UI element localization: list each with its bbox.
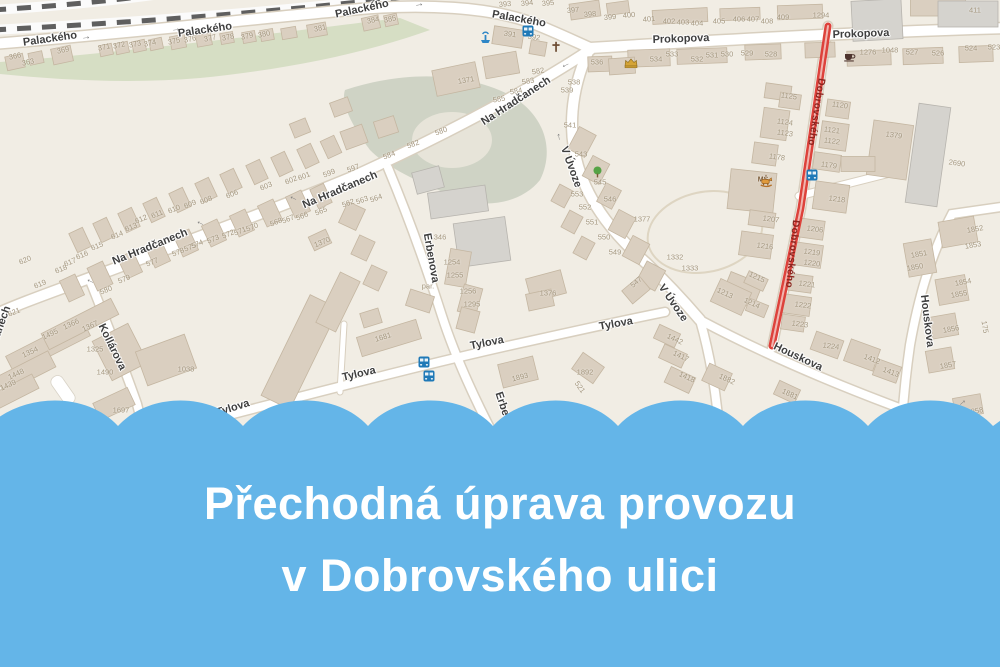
traffic-announcement-graphic: PalackéhoPalackéhoPalackéhoPalackéhoProk…	[0, 0, 1000, 667]
street-label: Palackého	[334, 0, 390, 21]
house-number: 2690	[948, 157, 966, 168]
house-number: 369	[56, 44, 70, 55]
house-number: 533	[666, 50, 679, 59]
house-number: 380	[257, 28, 271, 39]
house-number: 395	[541, 0, 554, 8]
house-number: 1412	[863, 352, 882, 366]
house-number: 563	[355, 194, 370, 207]
house-number: 405	[713, 17, 726, 26]
house-number: 616	[75, 248, 90, 261]
house-number: 526	[932, 49, 945, 58]
house-number: 407	[747, 15, 760, 24]
house-number: 1495	[41, 326, 60, 341]
house-number: 399	[603, 12, 616, 22]
house-number: 1213	[716, 285, 735, 300]
house-number: 530	[721, 50, 734, 59]
oneway-arrow-icon: →	[83, 275, 97, 289]
house-number: 1856	[942, 323, 960, 335]
house-number: 411	[969, 6, 981, 15]
house-number: 1442	[666, 331, 685, 346]
house-number: 552	[579, 203, 592, 212]
house-number: 584	[382, 149, 397, 162]
house-number: 1417	[672, 348, 691, 363]
street-label: Tylova	[341, 364, 377, 383]
banner-line-2: v Dobrovského ulici	[0, 540, 1000, 612]
house-number: 536	[591, 58, 604, 67]
house-number: 1179	[820, 159, 837, 170]
house-number: 1216	[756, 240, 774, 251]
house-number: 374	[143, 37, 157, 48]
house-number: 572	[221, 227, 236, 240]
house-number: 1207	[762, 213, 780, 224]
house-number: 1215	[748, 269, 767, 284]
house-number: 1332	[667, 253, 684, 262]
street-label: Tylova	[598, 315, 634, 333]
house-number: 378	[221, 31, 235, 42]
house-number: 527	[906, 48, 919, 57]
house-number: 1048	[882, 46, 899, 55]
house-number: 384	[366, 14, 380, 25]
house-number: 620	[18, 253, 33, 266]
house-number: 1379	[885, 129, 903, 140]
house-number: 1256	[460, 287, 477, 296]
house-number: 541	[564, 121, 577, 130]
house-number: 532	[691, 55, 704, 64]
house-number: 531	[706, 51, 719, 60]
house-number: 366	[8, 50, 22, 61]
house-number: 529	[741, 49, 754, 58]
house-number: 1371	[457, 74, 475, 86]
house-number: 1490	[97, 368, 114, 377]
house-number: 1882	[718, 371, 737, 386]
house-number: 618	[54, 262, 69, 275]
house-number: 1851	[910, 248, 928, 260]
oneway-arrow-icon: →	[413, 0, 425, 10]
house-number: 1220	[803, 257, 821, 268]
house-number: 404	[691, 19, 704, 28]
oneway-arrow-icon: →	[193, 217, 207, 231]
house-number: 549	[609, 248, 622, 257]
house-number: 1219	[803, 246, 821, 257]
house-number: 545	[594, 178, 607, 187]
house-number: 1681	[374, 330, 393, 343]
oneway-arrow-icon: →	[286, 192, 300, 206]
street-label: Houskova	[772, 340, 825, 373]
house-number: 1254	[444, 258, 461, 267]
house-number: 1121	[823, 124, 840, 135]
house-number: 379	[240, 30, 254, 41]
house-number: 1222	[794, 299, 812, 310]
house-number: 599	[322, 166, 337, 179]
house-number: 1854	[954, 276, 972, 288]
house-number: 175	[979, 320, 990, 334]
house-number: 363	[21, 56, 35, 67]
house-number: 385	[383, 13, 397, 24]
house-number: 1120	[831, 99, 848, 110]
house-number: 372	[112, 39, 126, 50]
house-number: 400	[622, 10, 635, 20]
house-number: 1367	[81, 318, 100, 333]
school-icon: MŠ	[758, 176, 769, 185]
house-number: 381	[313, 22, 327, 33]
house-number: 1295	[464, 300, 481, 309]
house-number: 1354	[21, 344, 40, 359]
oneway-arrow-icon: →	[559, 59, 573, 73]
house-number: 1224	[822, 340, 840, 351]
street-label: Houskova	[918, 294, 936, 348]
house-number: 375	[167, 35, 181, 46]
house-number: 1376	[540, 289, 557, 298]
house-number: 1850	[906, 261, 924, 273]
street-label: Prokopova	[832, 27, 889, 41]
house-number: 615	[90, 239, 105, 252]
house-number: 1893	[511, 371, 529, 384]
house-number: 1178	[768, 151, 785, 162]
house-number: 1892	[577, 368, 594, 377]
house-number: 391	[503, 29, 517, 40]
house-number: 1214	[743, 295, 762, 310]
house-number: 1697	[113, 406, 130, 415]
house-number: 614	[110, 228, 125, 241]
house-number: 376	[183, 33, 197, 44]
street-label: Tylova	[469, 334, 505, 352]
house-number: 1377	[634, 215, 651, 224]
house-number: 566	[295, 209, 310, 222]
oneway-arrow-icon: →	[80, 31, 91, 43]
house-number: 564	[369, 192, 384, 205]
house-number: 1370	[313, 235, 332, 250]
house-number: 397	[566, 5, 579, 15]
house-number: 393	[498, 0, 511, 9]
house-number: 1123	[776, 127, 793, 138]
house-number: 1855	[950, 288, 968, 300]
house-number: 578	[171, 245, 186, 258]
house-number: 550	[598, 233, 611, 242]
house-number: 1124	[776, 116, 793, 127]
house-number: 1857	[939, 359, 957, 371]
house-number: 408	[761, 17, 774, 26]
house-number: 409	[777, 13, 790, 22]
house-number: 377	[203, 32, 217, 43]
house-number: 606	[225, 187, 240, 200]
house-number: 580	[434, 125, 449, 138]
house-number: 609	[183, 197, 198, 210]
oneway-arrow-icon: →	[170, 23, 181, 35]
house-number: 539	[561, 86, 574, 95]
street-label: Tylova	[215, 397, 251, 418]
house-number: 608	[199, 193, 214, 206]
house-number: 371	[97, 41, 111, 52]
street-label: Na Hradčanech	[301, 169, 379, 211]
banner-title: Přechodná úprava provozu v Dobrovského u…	[0, 468, 1000, 612]
house-number: 401	[642, 14, 655, 24]
house-number: 398	[583, 9, 596, 19]
house-number: 523	[988, 43, 1000, 52]
house-number: 1439	[0, 377, 17, 392]
house-number: 1221	[798, 278, 816, 289]
house-number: par.	[422, 282, 435, 291]
house-number: 546	[604, 195, 617, 204]
house-number: 1038	[178, 365, 195, 374]
house-number: 1881	[781, 386, 800, 401]
house-number: 610	[167, 202, 182, 215]
house-number: 613	[124, 220, 139, 233]
house-number: 1223	[791, 318, 809, 329]
house-number: 1122	[823, 135, 840, 146]
house-number: 547	[628, 275, 643, 290]
house-number: 1125	[780, 90, 797, 101]
house-number: 603	[259, 179, 274, 192]
house-number: 534	[650, 55, 663, 64]
street-label: Erbenova	[493, 390, 520, 441]
house-number: 1333	[682, 264, 699, 273]
house-number: 1255	[447, 271, 464, 280]
house-number: 553	[571, 190, 584, 199]
house-number: 1325	[87, 345, 104, 354]
house-number: 403	[677, 18, 690, 27]
house-number: 573	[206, 232, 221, 245]
oneway-arrow-icon: →	[552, 131, 565, 143]
house-number: 562	[341, 197, 356, 210]
house-number: 1276	[860, 48, 877, 57]
house-number: 579	[117, 272, 132, 285]
house-number: 406	[733, 15, 746, 24]
house-number: 1294	[813, 11, 830, 20]
street-label: V Úvoze	[656, 282, 690, 324]
house-number: 524	[965, 44, 978, 53]
house-number: 528	[765, 50, 778, 59]
house-number: 577	[145, 255, 160, 268]
house-number: 1858	[966, 405, 984, 417]
banner-line-1: Přechodná úprava provozu	[0, 468, 1000, 540]
street-label: Palackého	[22, 29, 78, 48]
house-number: 551	[586, 218, 599, 227]
house-number: 597	[346, 162, 361, 175]
house-number: 1366	[62, 316, 81, 331]
house-number: 1206	[806, 223, 824, 234]
house-number: 568	[269, 215, 284, 228]
house-number: 1853	[964, 239, 982, 251]
house-number: 521	[573, 379, 588, 394]
house-number: 402	[663, 17, 676, 26]
house-number: 1413	[882, 365, 901, 379]
street-label: Prokopova	[652, 32, 709, 46]
house-number: 346	[434, 233, 447, 242]
house-number: 1218	[828, 193, 846, 204]
house-number: 619	[33, 277, 48, 290]
house-number: 1418	[678, 369, 697, 384]
house-number: 611	[150, 208, 164, 221]
house-number: 394	[520, 0, 533, 8]
house-number: 543	[575, 150, 588, 159]
house-number: 580	[99, 283, 114, 296]
street-label: Na Hradčanech	[479, 74, 553, 128]
house-number: 373	[128, 38, 142, 49]
house-number: 602	[284, 173, 299, 186]
house-number: 582	[406, 138, 421, 151]
street-label: Palackého	[491, 8, 547, 29]
house-number: 1852	[966, 223, 984, 235]
